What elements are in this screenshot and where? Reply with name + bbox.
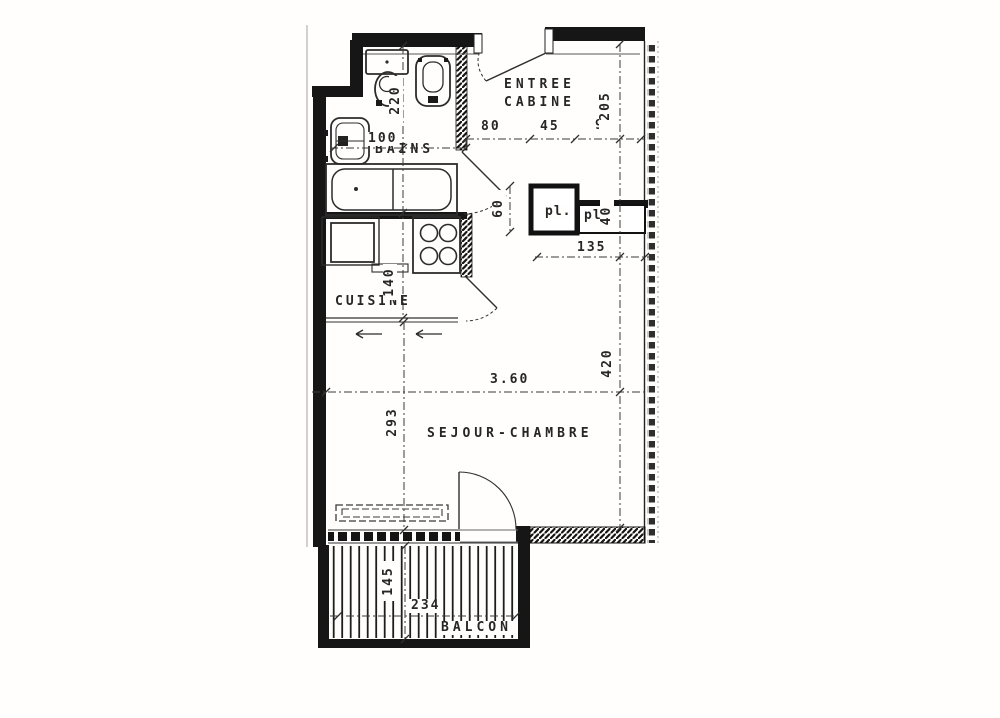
room-label-entree-line2: CABINE <box>504 96 575 110</box>
dim-sejour-width: 3.60 <box>488 373 531 387</box>
dim-wc-depth: 220 <box>389 76 403 124</box>
stove-icon <box>413 217 460 273</box>
room-label-sejour: SEJOUR-CHAMBRE <box>427 427 593 441</box>
dim-closet-depth: 60 <box>492 190 506 226</box>
right-wall <box>645 41 656 543</box>
dim-entree-seg1: 80 <box>479 120 503 134</box>
door-jambs <box>474 29 553 53</box>
dim-entree-seg2: 45 <box>538 120 562 134</box>
floorplan-drawing <box>0 0 1000 718</box>
room-label-entree-line1: ENTREE <box>504 78 575 92</box>
dim-closet2-depth: 40 <box>600 200 614 231</box>
room-label-balcon: BALCON <box>438 621 515 635</box>
dim-sejour-length: 420 <box>601 343 615 383</box>
dim-balcon-width: 234 <box>409 599 442 613</box>
dim-balcon-depth: 145 <box>382 561 396 601</box>
window-sill-wall <box>328 530 518 543</box>
room-label-cuisine: CUISINE <box>335 295 411 309</box>
bidet-icon <box>416 56 450 106</box>
window-icon <box>336 505 448 521</box>
dim-closet-width: 135 <box>575 241 608 255</box>
sliding-arrows <box>356 330 442 338</box>
dim-cabine-depth: 205 <box>599 78 613 134</box>
washbasin-icon <box>324 118 369 164</box>
floorplan-canvas: ENTREE CABINE BAINS CUISINE SEJOUR-CHAMB… <box>0 0 1000 718</box>
bathtub-icon <box>326 164 457 215</box>
dim-bains-width: 100 <box>366 132 399 146</box>
dim-sejour-depth: 293 <box>386 402 400 442</box>
closet1-label: pl. <box>545 205 571 219</box>
dim-cuisine-depth: 140 <box>383 264 397 300</box>
balcony-door <box>459 472 518 542</box>
cuisine-door <box>466 277 497 321</box>
bottom-right-wall <box>530 527 645 543</box>
